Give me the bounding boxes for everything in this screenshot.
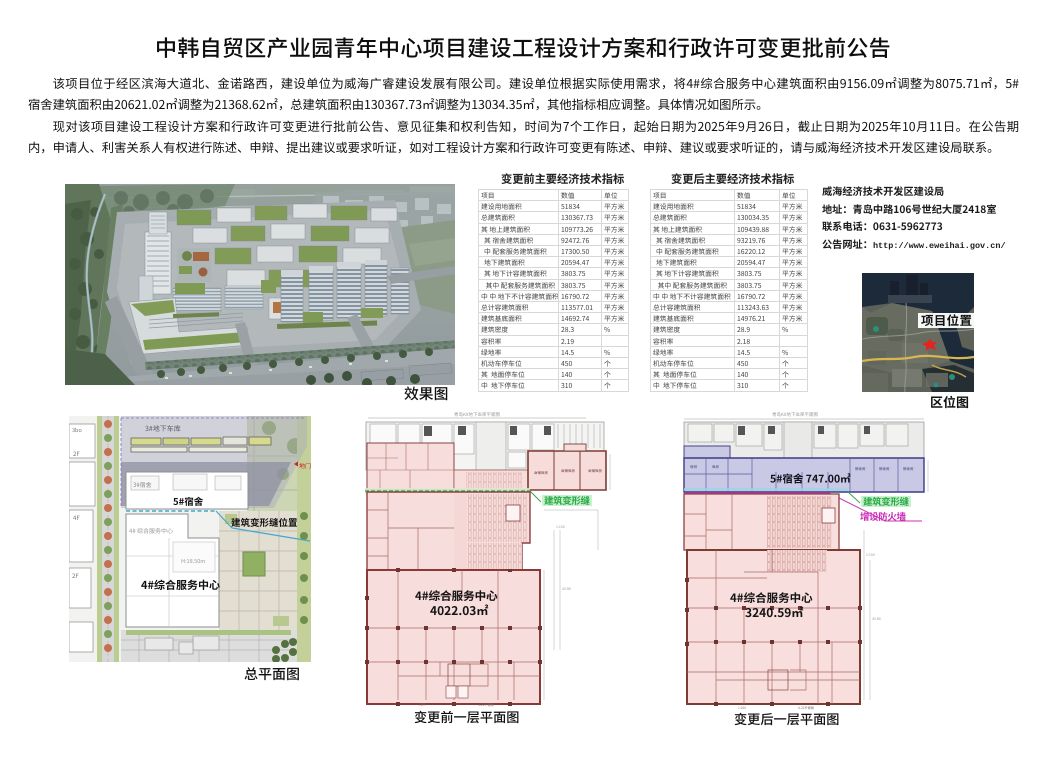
svg-text:1.250: 1.250 — [418, 702, 426, 707]
svg-text:4# 综合服务中心: 4# 综合服务中心 — [129, 526, 173, 535]
svg-text:2F: 2F — [72, 571, 79, 580]
svg-text:4#综合服务中心: 4#综合服务中心 — [141, 577, 220, 593]
svg-text:2F: 2F — [73, 449, 80, 458]
svg-text:宿舍房: 宿舍房 — [855, 467, 866, 472]
svg-text:商铺库房: 商铺库房 — [561, 469, 575, 474]
svg-text:H:18.50m: H:18.50m — [181, 557, 205, 565]
svg-text:项目位置: 项目位置 — [921, 310, 972, 329]
svg-text:1:150: 1:150 — [556, 525, 565, 530]
svg-text:3bo: 3bo — [72, 426, 82, 434]
svg-text:5#宿舍 747.00㎡: 5#宿舍 747.00㎡ — [770, 472, 851, 487]
svg-text:青岛KX地下车库平面图: 青岛KX地下车库平面图 — [454, 412, 500, 418]
svg-text:增设防火墙: 增设防火墙 — [860, 509, 906, 523]
svg-text:商铺库房: 商铺库房 — [588, 469, 602, 474]
svg-text:45.80: 45.80 — [562, 587, 571, 592]
svg-text:青岛KX地下车库平面图: 青岛KX地下车库平面图 — [772, 412, 818, 418]
svg-text:库房: 库房 — [712, 465, 720, 470]
svg-text:3#宿舍: 3#宿舍 — [133, 480, 152, 489]
svg-text:1:150: 1:150 — [866, 553, 875, 558]
svg-text:3240.59㎡: 3240.59㎡ — [745, 604, 803, 621]
svg-text:5#宿舍: 5#宿舍 — [173, 494, 204, 508]
svg-text:商铺库房: 商铺库房 — [534, 471, 548, 476]
svg-text:宿舍房: 宿舍房 — [903, 467, 914, 472]
svg-text:建筑变形缝: 建筑变形缝 — [544, 493, 590, 507]
svg-text:3#地下车库: 3#地下车库 — [145, 424, 181, 434]
svg-text:4022.03㎡: 4022.03㎡ — [430, 602, 488, 619]
svg-text:建筑变形缝位置: 建筑变形缝位置 — [231, 515, 298, 529]
svg-text:建筑变形缝: 建筑变形缝 — [863, 494, 909, 508]
svg-text:宿舍房: 宿舍房 — [879, 467, 890, 472]
svg-text:值班: 值班 — [690, 465, 698, 470]
svg-text:45.80: 45.80 — [872, 617, 881, 622]
svg-text:4F: 4F — [73, 513, 80, 522]
svg-text:地门: 地门 — [299, 461, 311, 470]
